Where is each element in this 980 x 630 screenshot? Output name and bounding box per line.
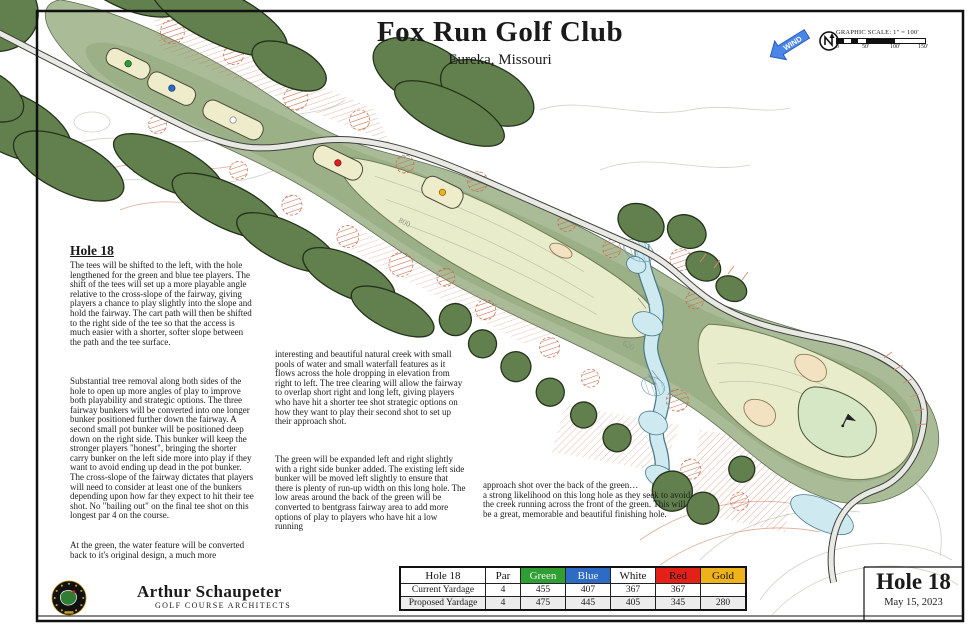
notes-heading: Hole 18 bbox=[70, 243, 114, 259]
architect-subtitle: GOLF COURSE ARCHITECTS bbox=[155, 601, 291, 610]
notes-paragraph: interesting and beautiful natural creek … bbox=[275, 350, 467, 427]
notes-paragraph: approach shot over the back of the green… bbox=[483, 481, 691, 519]
graphic-scale: GRAPHIC SCALE: 1" = 100' 0 50' 100' 150' bbox=[836, 29, 956, 52]
sheet-hole-title: Hole 18 bbox=[864, 569, 963, 595]
yardage-header-white: White bbox=[611, 567, 656, 584]
yardage-header-red: Red bbox=[656, 567, 701, 584]
yardage-header-hole: Hole 18 bbox=[400, 567, 486, 584]
notes-paragraph: At the green, the water feature will be … bbox=[70, 541, 254, 560]
notes-paragraph: The tees will be shifted to the left, wi… bbox=[70, 261, 254, 347]
architect-name: Arthur Schaupeter bbox=[137, 582, 282, 602]
yardage-table: Hole 18 Par Green Blue White Red Gold Cu… bbox=[399, 566, 747, 611]
yardage-header-gold: Gold bbox=[701, 567, 747, 584]
svg-text:WIND: WIND bbox=[782, 34, 804, 53]
graphic-scale-ticks: 0 50' 100' 150' bbox=[836, 44, 936, 52]
yardage-header-blue: Blue bbox=[566, 567, 611, 584]
notes-paragraph: Substantial tree removal along both side… bbox=[70, 377, 254, 521]
yardage-header-row: Hole 18 Par Green Blue White Red Gold bbox=[400, 567, 746, 584]
yardage-header-green: Green bbox=[521, 567, 566, 584]
graphic-scale-title: GRAPHIC SCALE: 1" = 100' bbox=[836, 29, 956, 36]
yardage-header-par: Par bbox=[486, 567, 521, 584]
notes-paragraph: The green will be expanded left and righ… bbox=[275, 455, 467, 532]
plan-sheet: { "title": { "club": "Fox Run Golf Club"… bbox=[0, 0, 980, 630]
yardage-row-proposed: Proposed Yardage 4 475 445 405 345 280 bbox=[400, 597, 746, 611]
yardage-row-current: Current Yardage 4 455 407 367 367 bbox=[400, 584, 746, 597]
sheet-date: May 15, 2023 bbox=[864, 597, 963, 608]
architect-logo bbox=[50, 579, 88, 617]
page-subtitle: Eureka, Missouri bbox=[37, 52, 963, 69]
